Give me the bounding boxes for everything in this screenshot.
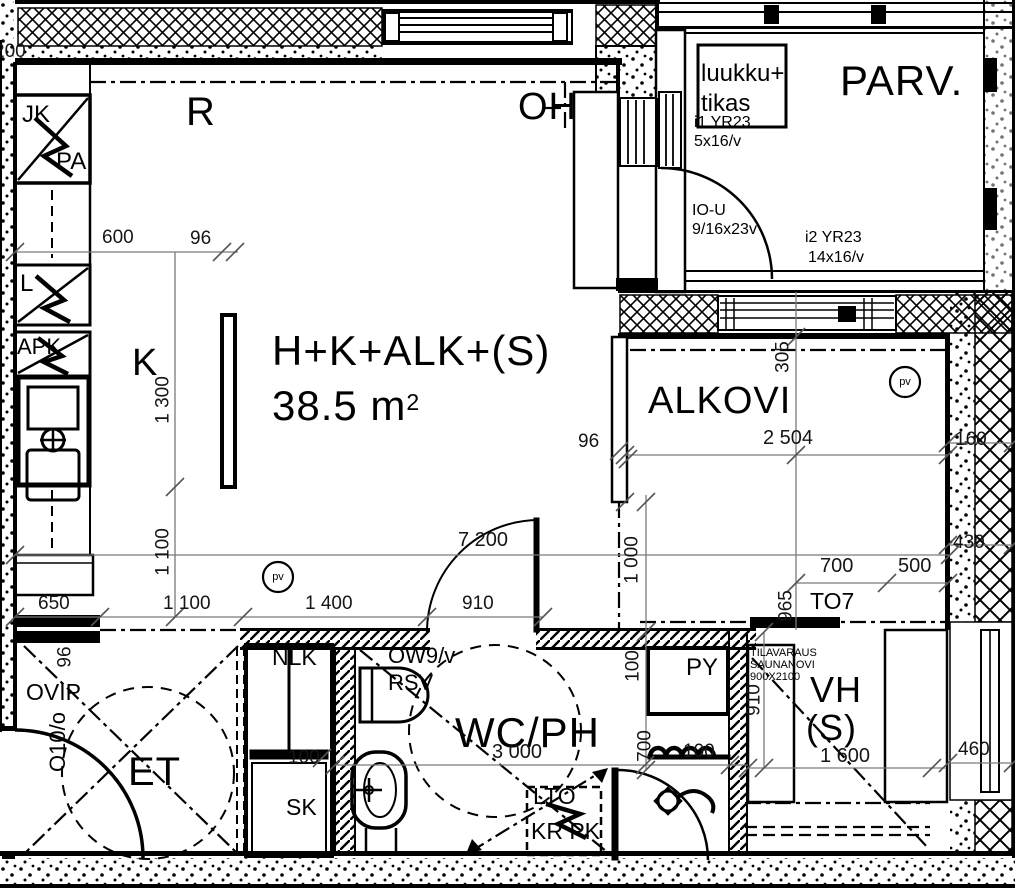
- alcove-walls: [612, 337, 627, 502]
- apartment-type: H+K+ALK+(S): [272, 330, 550, 372]
- freezer-label: PA: [56, 150, 86, 174]
- coatrack-label: NLK: [272, 646, 317, 669]
- sauna-note-3: 900X2100: [750, 672, 800, 683]
- smoke-detector-label: pv: [272, 571, 284, 583]
- dim: 96: [578, 432, 599, 451]
- bottom-wall: [0, 851, 1015, 888]
- vh-door-arc: [618, 770, 708, 860]
- doorphone-label: OVIP: [26, 681, 81, 704]
- dim: 1 300: [154, 376, 173, 424]
- window2-size: 14x16/v: [808, 250, 864, 266]
- dishwasher-label: APK: [17, 336, 61, 358]
- balcony-lower-band: [618, 290, 1015, 339]
- sauna-note-2: SAUNANOVI: [750, 660, 815, 671]
- faucet: [678, 791, 713, 813]
- dim: 160: [955, 430, 987, 449]
- bath-door-note: RSV: [388, 672, 433, 694]
- room-living: OH: [518, 88, 577, 126]
- area-value: 38.5 m: [272, 382, 406, 429]
- bath-door-leaf: [534, 518, 539, 632]
- entry-door-label: O10/o: [47, 712, 69, 772]
- stove-label: L: [20, 272, 33, 296]
- dim: 305: [774, 341, 793, 373]
- dim: 7 200: [458, 530, 508, 550]
- smoke-detector-label: pv: [899, 376, 911, 388]
- balcony-door-label: IO-U: [692, 203, 726, 219]
- dim: 500: [898, 556, 931, 576]
- vh-door-leaf: [612, 768, 618, 860]
- arrow-head: [592, 768, 608, 783]
- fridge-label: JK: [22, 103, 50, 127]
- storage-door-label: TO7: [810, 590, 854, 613]
- dim: 96: [190, 229, 211, 248]
- washer-label: PY: [686, 656, 718, 680]
- dim: 430: [953, 533, 985, 552]
- dim: 200: [0, 42, 26, 61]
- kitchen-units: [15, 64, 93, 595]
- dim: 460: [958, 740, 990, 759]
- cleaning-closet-label: SK: [286, 796, 317, 819]
- dim: 1 000: [623, 536, 642, 584]
- kitchen-wall-stub2: [15, 631, 100, 643]
- dim: 100: [624, 650, 643, 682]
- floor-plan: R OH K H+K+ALK+(S) 38.5 m2 PARV. ALKOVI …: [0, 0, 1015, 888]
- room-dining: R: [186, 92, 216, 132]
- window1-size: 5x16/v: [694, 134, 741, 150]
- dim: 100: [683, 742, 715, 761]
- dim: 700: [820, 556, 853, 576]
- dim: 965: [777, 590, 796, 622]
- dim: 2 504: [763, 428, 813, 448]
- dim: 1 100: [163, 594, 211, 613]
- dim: 1 100: [154, 528, 173, 576]
- heat-recovery-label: LTO: [533, 785, 576, 808]
- window1-label: i1 YR23: [694, 115, 751, 131]
- window2-label: i2 YR23: [805, 230, 862, 246]
- dim: 3 000: [492, 742, 542, 762]
- dim: 1 600: [820, 746, 870, 766]
- apartment-area: 38.5 m2: [272, 385, 420, 427]
- dim: 96: [56, 646, 75, 667]
- room-alcove: ALKOVI: [648, 382, 791, 420]
- balcony-door-size: 9/16x23v: [692, 222, 757, 238]
- dim: 910: [462, 594, 494, 613]
- dim: 1 400: [305, 594, 353, 613]
- room-balcony: PARV.: [840, 60, 963, 102]
- dim: 100: [288, 748, 320, 767]
- dim: 600: [102, 228, 134, 247]
- top-wall: [15, 0, 660, 98]
- dryer-label: KR PK: [531, 820, 600, 843]
- area-sup: 2: [406, 389, 420, 415]
- sauna-note-1: TILAVARAUS: [750, 648, 817, 659]
- room-closet-1: VH: [810, 672, 862, 708]
- screen-wall: [222, 315, 235, 487]
- room-closet-2: (S): [806, 710, 857, 746]
- room-entry: ET: [128, 752, 181, 792]
- hatch-label-1: luukku+: [701, 62, 784, 86]
- entry-door-arc: [15, 730, 143, 858]
- dim: 910: [745, 684, 764, 716]
- bath-door-label: OW9/v: [388, 645, 455, 667]
- hatch-label-2: tikas: [701, 92, 750, 116]
- dim: 700: [636, 730, 655, 762]
- dim: 650: [38, 594, 70, 613]
